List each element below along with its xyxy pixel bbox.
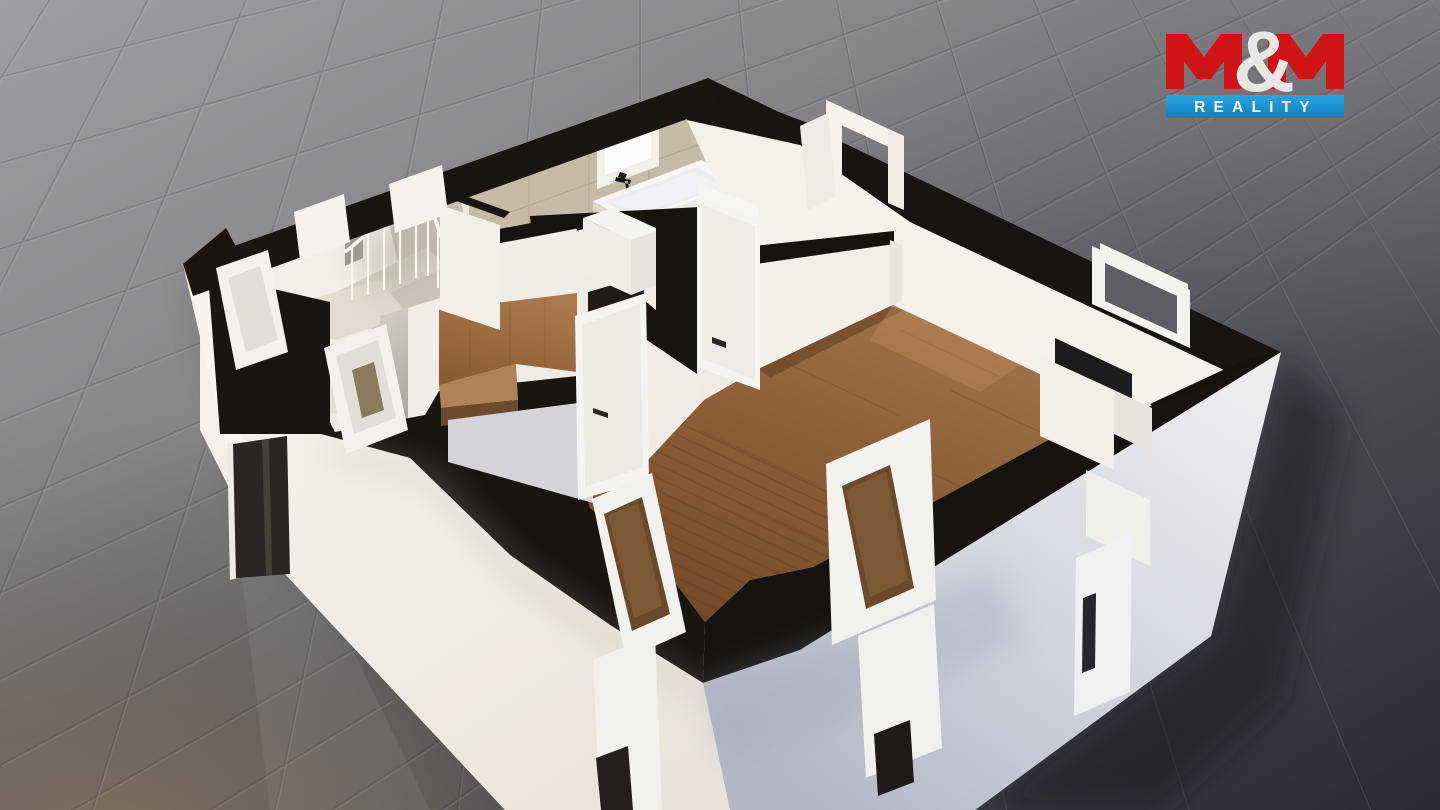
svg-text:REALITY: REALITY (1194, 99, 1318, 116)
